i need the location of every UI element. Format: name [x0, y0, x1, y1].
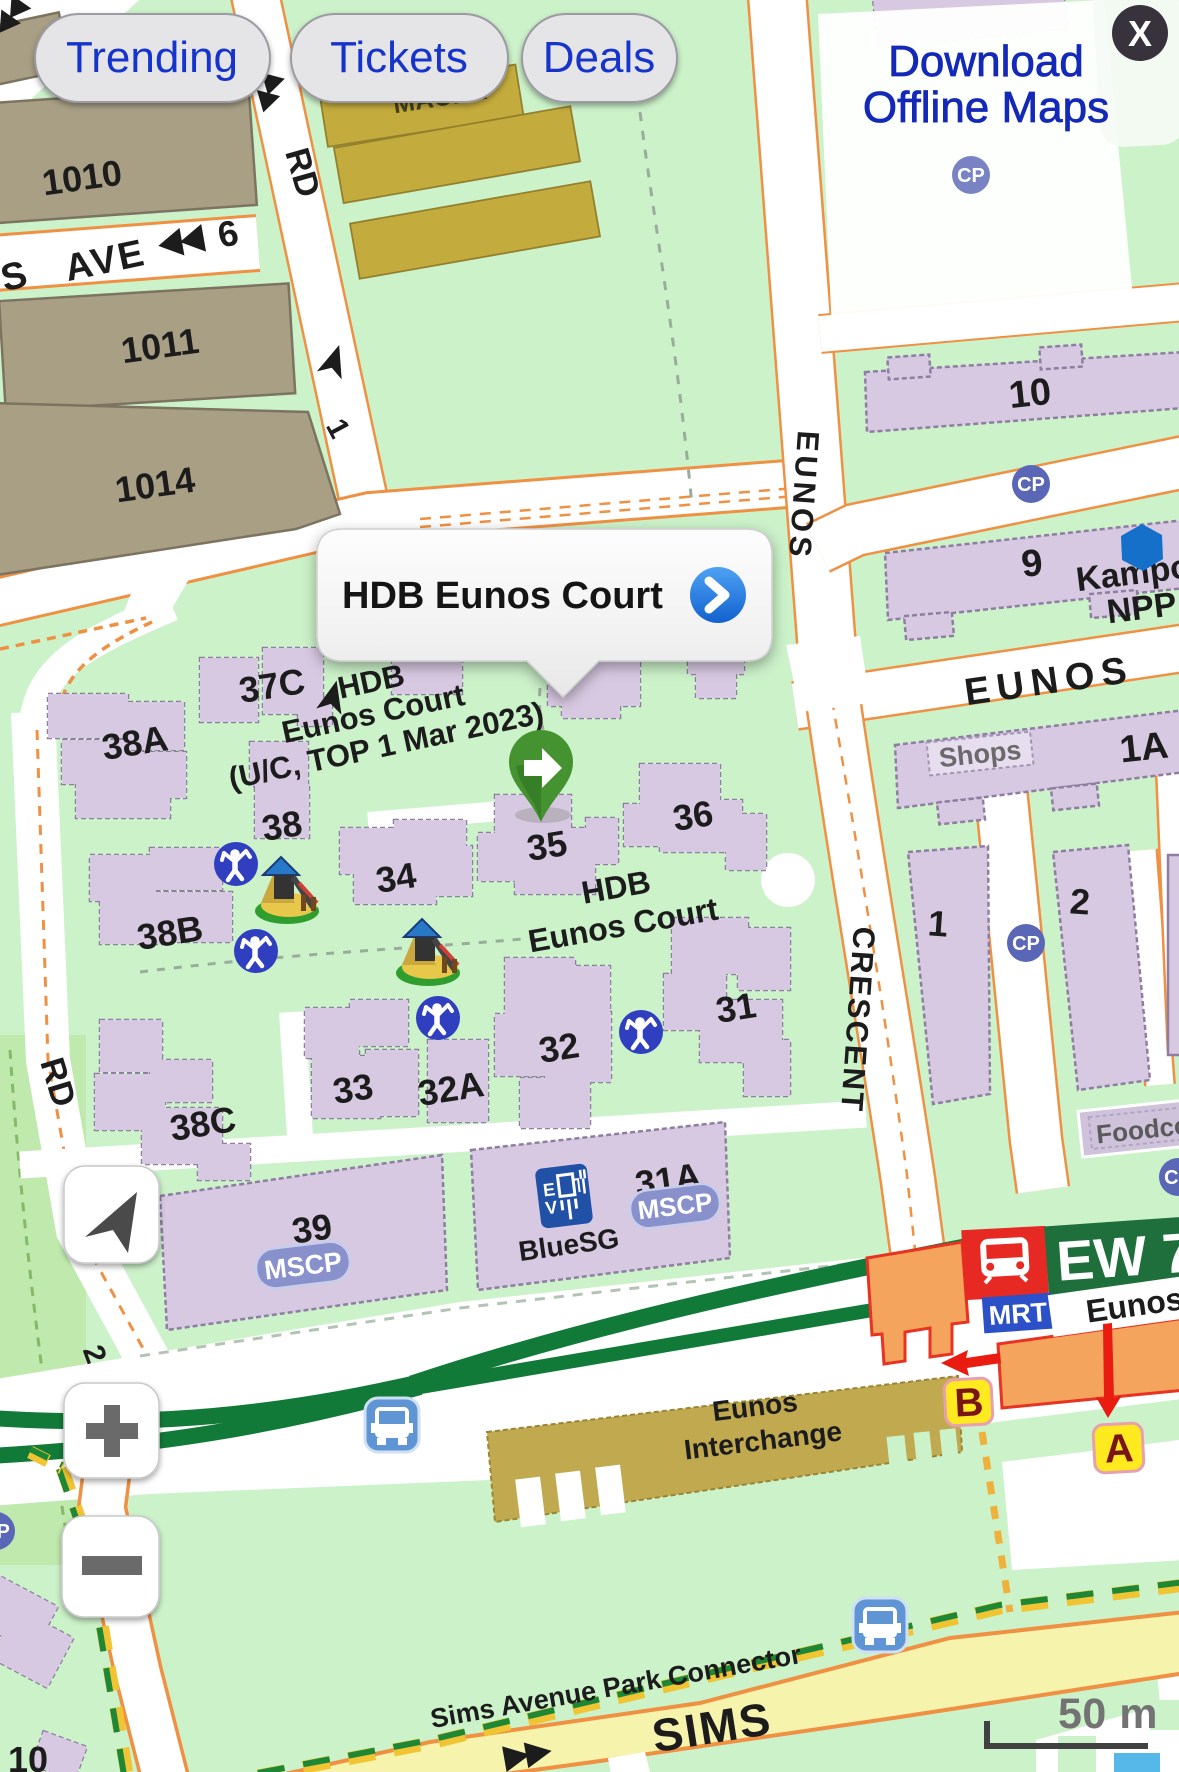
svg-text:10: 10	[1007, 371, 1053, 417]
svg-text:50 m: 50 m	[1058, 1690, 1158, 1738]
svg-text:Download: Download	[888, 37, 1084, 86]
svg-text:32: 32	[536, 1024, 582, 1071]
svg-text:Trending: Trending	[66, 33, 238, 82]
svg-text:35: 35	[524, 822, 570, 869]
svg-text:MRT: MRT	[988, 1297, 1049, 1331]
svg-text:B: B	[953, 1380, 984, 1425]
svg-text:36: 36	[670, 792, 716, 839]
svg-text:33: 33	[330, 1065, 376, 1112]
svg-text:V: V	[544, 1197, 558, 1218]
svg-text:A: A	[1103, 1426, 1134, 1471]
svg-text:9: 9	[1019, 542, 1044, 586]
svg-text:34: 34	[373, 854, 419, 901]
svg-text:X: X	[1128, 13, 1152, 54]
svg-text:31: 31	[713, 984, 759, 1031]
svg-text:1: 1	[927, 902, 950, 944]
svg-text:2: 2	[1069, 880, 1092, 922]
svg-text:10: 10	[8, 1739, 48, 1772]
svg-text:HDB Eunos Court: HDB Eunos Court	[342, 575, 663, 617]
svg-text:1A: 1A	[1118, 725, 1171, 772]
svg-text:38: 38	[259, 802, 305, 849]
svg-text:Deals: Deals	[543, 33, 656, 82]
svg-text:Tickets: Tickets	[330, 33, 468, 82]
svg-text:Offline Maps: Offline Maps	[863, 83, 1109, 132]
